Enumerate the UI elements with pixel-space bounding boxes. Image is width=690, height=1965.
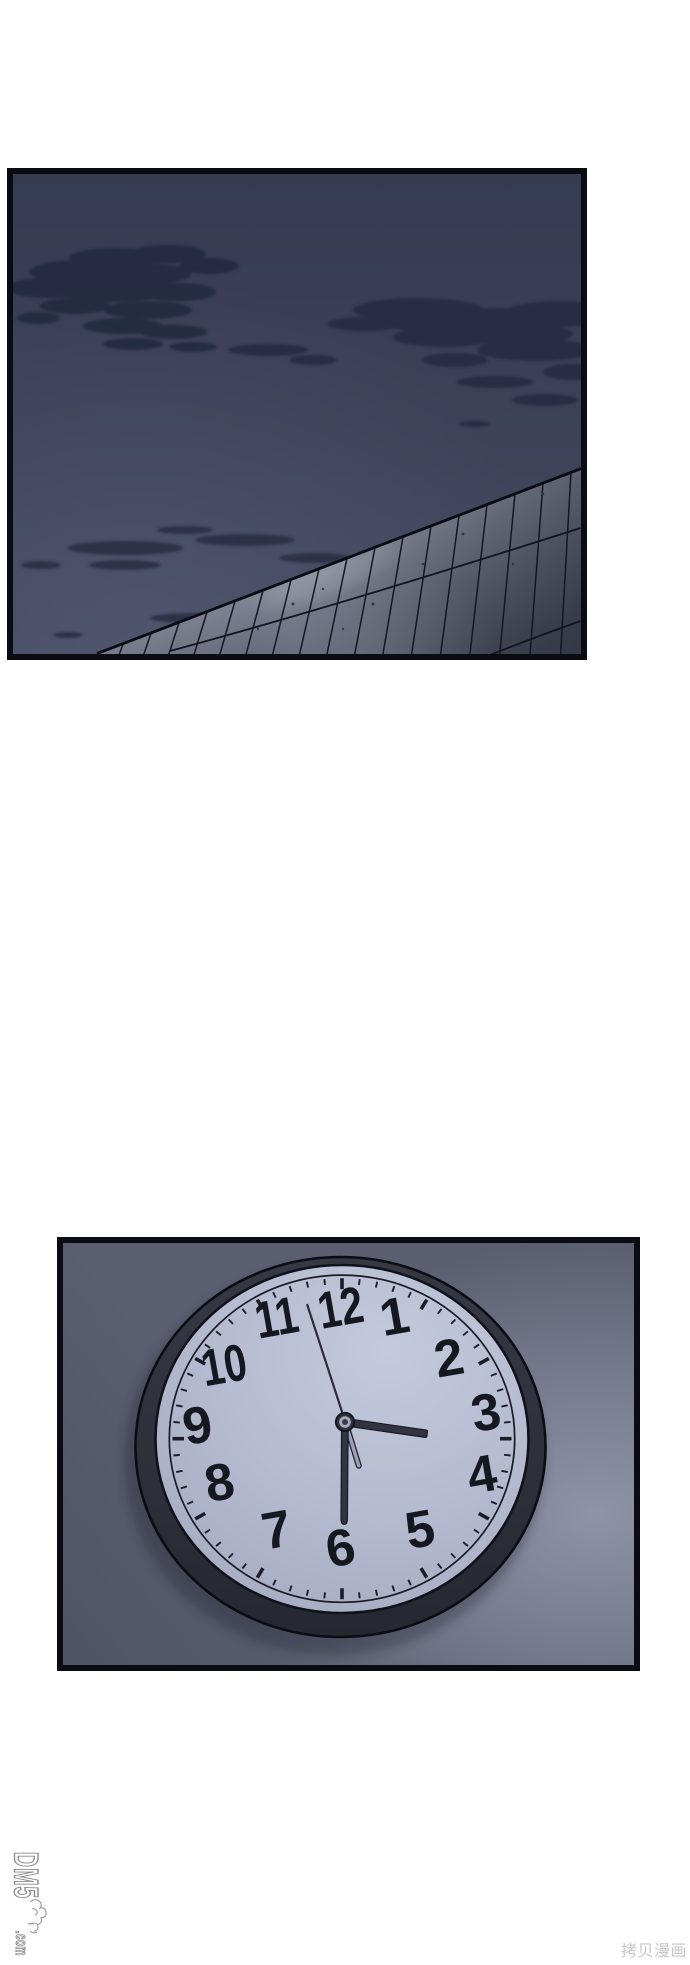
svg-text:.com: .com [12, 1931, 31, 1956]
svg-text:DM5: DM5 [7, 1852, 45, 1899]
